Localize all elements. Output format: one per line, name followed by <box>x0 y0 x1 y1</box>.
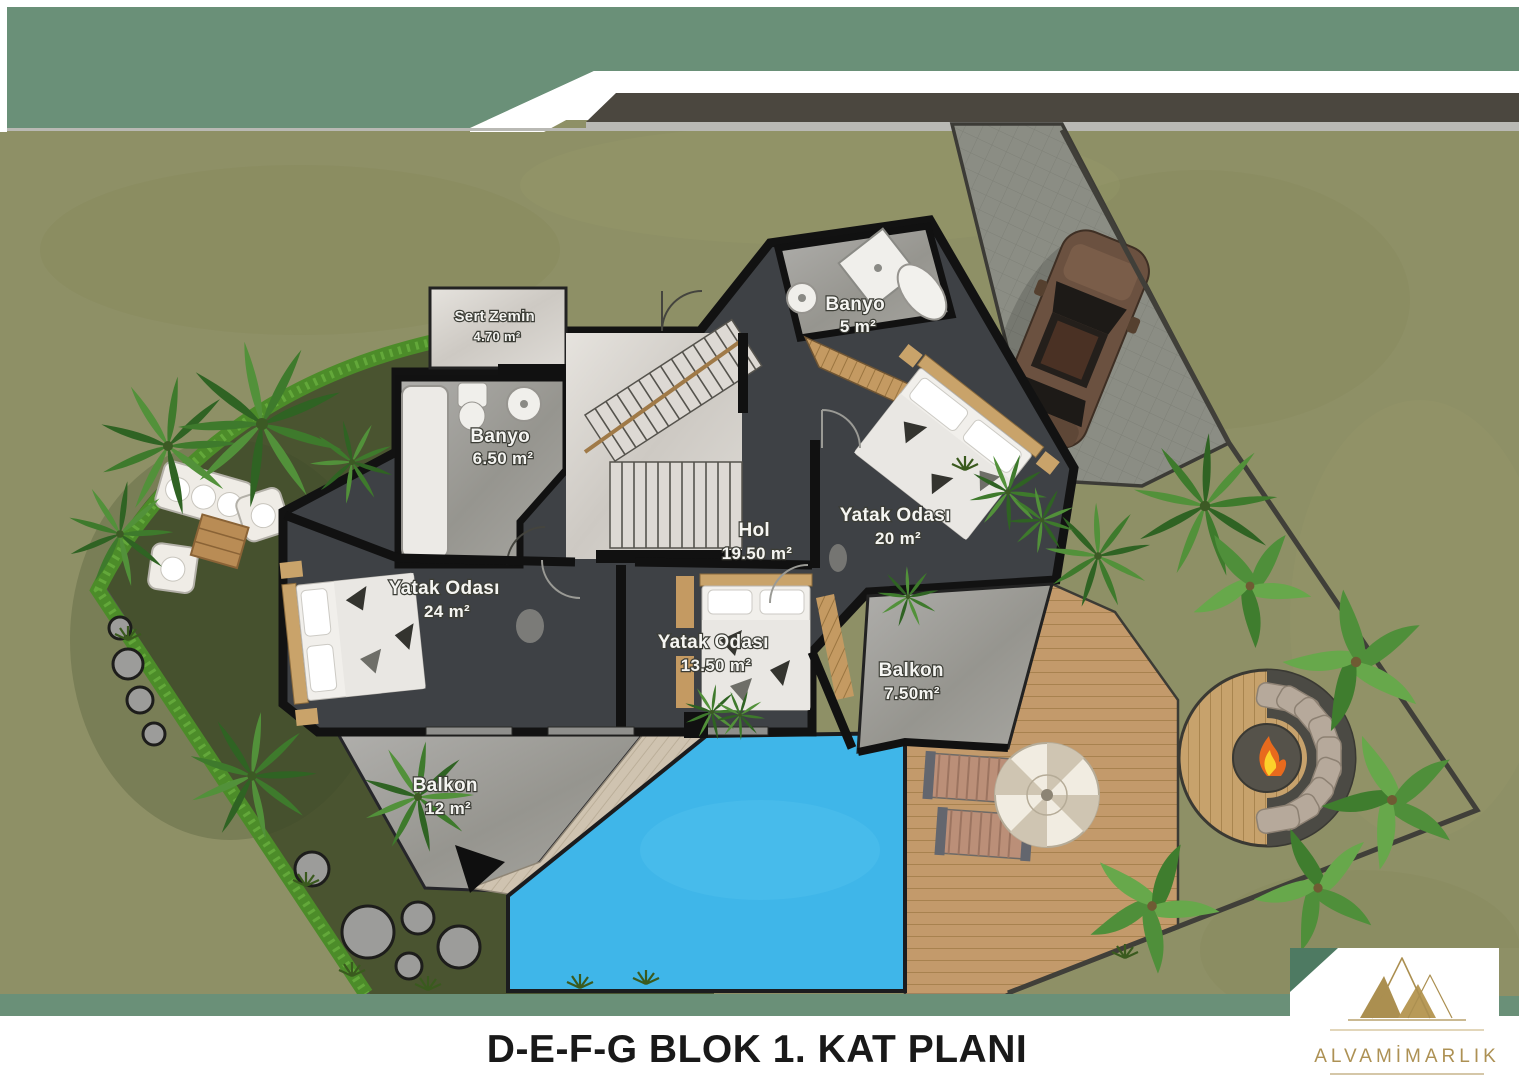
brand-name: ALVAMİMARLIK <box>1314 1046 1500 1067</box>
plan-title: D-E-F-G BLOK 1. KAT PLANI <box>487 1028 1027 1071</box>
bathtub <box>402 386 448 558</box>
top-banner <box>0 0 1519 132</box>
pouf <box>516 609 544 643</box>
road-strip <box>586 93 1519 122</box>
brand-logo-panel: ALVAMİMARLIK <box>1290 948 1519 1080</box>
fire-pit-lounge <box>1179 670 1355 846</box>
pouf <box>829 544 847 572</box>
floor-plan-canvas: Sert Zemin 4.70 m² Banyo 6.50 m² Banyo 5… <box>0 0 1519 1080</box>
floor-plan-sheet: Sert Zemin 4.70 m² Banyo 6.50 m² Banyo 5… <box>0 0 1519 1080</box>
armchair <box>147 542 199 594</box>
patio-umbrella <box>995 743 1099 847</box>
